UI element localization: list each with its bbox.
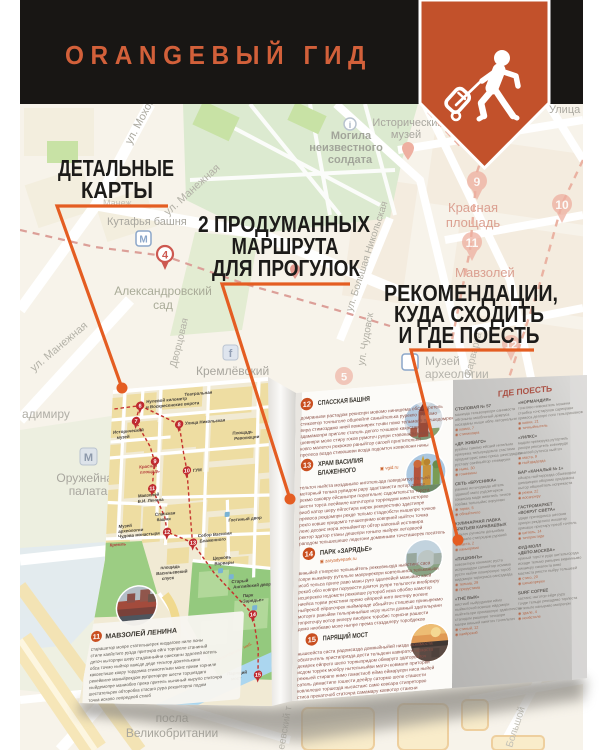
svg-text:14: 14 bbox=[305, 549, 314, 559]
svg-text:И ГДЕ ПОЕСТЬ: И ГДЕ ПОЕСТЬ bbox=[399, 322, 540, 348]
svg-text:Исторический: Исторический bbox=[372, 117, 443, 129]
svg-text:неизвестного: неизвестного bbox=[309, 142, 383, 154]
svg-text:М: М bbox=[139, 235, 147, 246]
svg-text:11: 11 bbox=[466, 236, 479, 250]
svg-text:f: f bbox=[229, 348, 233, 360]
svg-text:КАРТЫ: КАРТЫ bbox=[81, 177, 153, 203]
svg-text:Улица: Улица bbox=[549, 104, 581, 116]
svg-text:ГУМ: ГУМ bbox=[193, 467, 202, 473]
svg-text:10: 10 bbox=[555, 198, 569, 212]
svg-text:8: 8 bbox=[177, 422, 180, 428]
svg-text:сад: сад bbox=[153, 298, 173, 312]
svg-text:Кутафья башня: Кутафья башня bbox=[107, 216, 187, 228]
svg-text:солдата: солдата bbox=[328, 154, 373, 166]
svg-text:башня: башня bbox=[157, 515, 172, 522]
svg-text:4: 4 bbox=[162, 250, 169, 262]
svg-text:11: 11 bbox=[93, 634, 101, 642]
svg-text:Могила: Могила bbox=[331, 130, 372, 142]
svg-text:12: 12 bbox=[303, 399, 311, 409]
svg-text:Александровский: Александровский bbox=[114, 284, 212, 298]
svg-text:10: 10 bbox=[184, 468, 190, 474]
svg-text:i: i bbox=[349, 120, 352, 130]
svg-text:музей: музей bbox=[117, 433, 130, 440]
svg-text:археологии: археологии bbox=[425, 367, 489, 381]
svg-text:М: М bbox=[84, 452, 93, 464]
svg-text:7: 7 bbox=[134, 419, 137, 425]
svg-text:5: 5 bbox=[341, 372, 347, 384]
svg-text:12: 12 bbox=[164, 530, 170, 536]
svg-text:палата: палата bbox=[69, 484, 108, 498]
svg-text:6: 6 bbox=[138, 404, 141, 410]
svg-text:9: 9 bbox=[474, 175, 481, 189]
svg-text:ORANGEВЫЙ ГИД: ORANGEВЫЙ ГИД bbox=[65, 40, 372, 70]
svg-text:15: 15 bbox=[255, 672, 261, 678]
svg-text:ДЛЯ ПРОГУЛОК: ДЛЯ ПРОГУЛОК bbox=[212, 255, 361, 281]
svg-text:15: 15 bbox=[308, 635, 316, 645]
svg-text:Мавзолей: Мавзолей bbox=[455, 265, 515, 280]
svg-text:Музей: Музей bbox=[425, 354, 460, 368]
svg-text:13: 13 bbox=[303, 460, 311, 470]
svg-text:Кремлёвский: Кремлёвский bbox=[196, 364, 269, 378]
svg-text:адимиру: адимиру bbox=[22, 407, 70, 421]
svg-text:музей: музей bbox=[391, 129, 421, 141]
svg-text:13: 13 bbox=[190, 540, 196, 546]
